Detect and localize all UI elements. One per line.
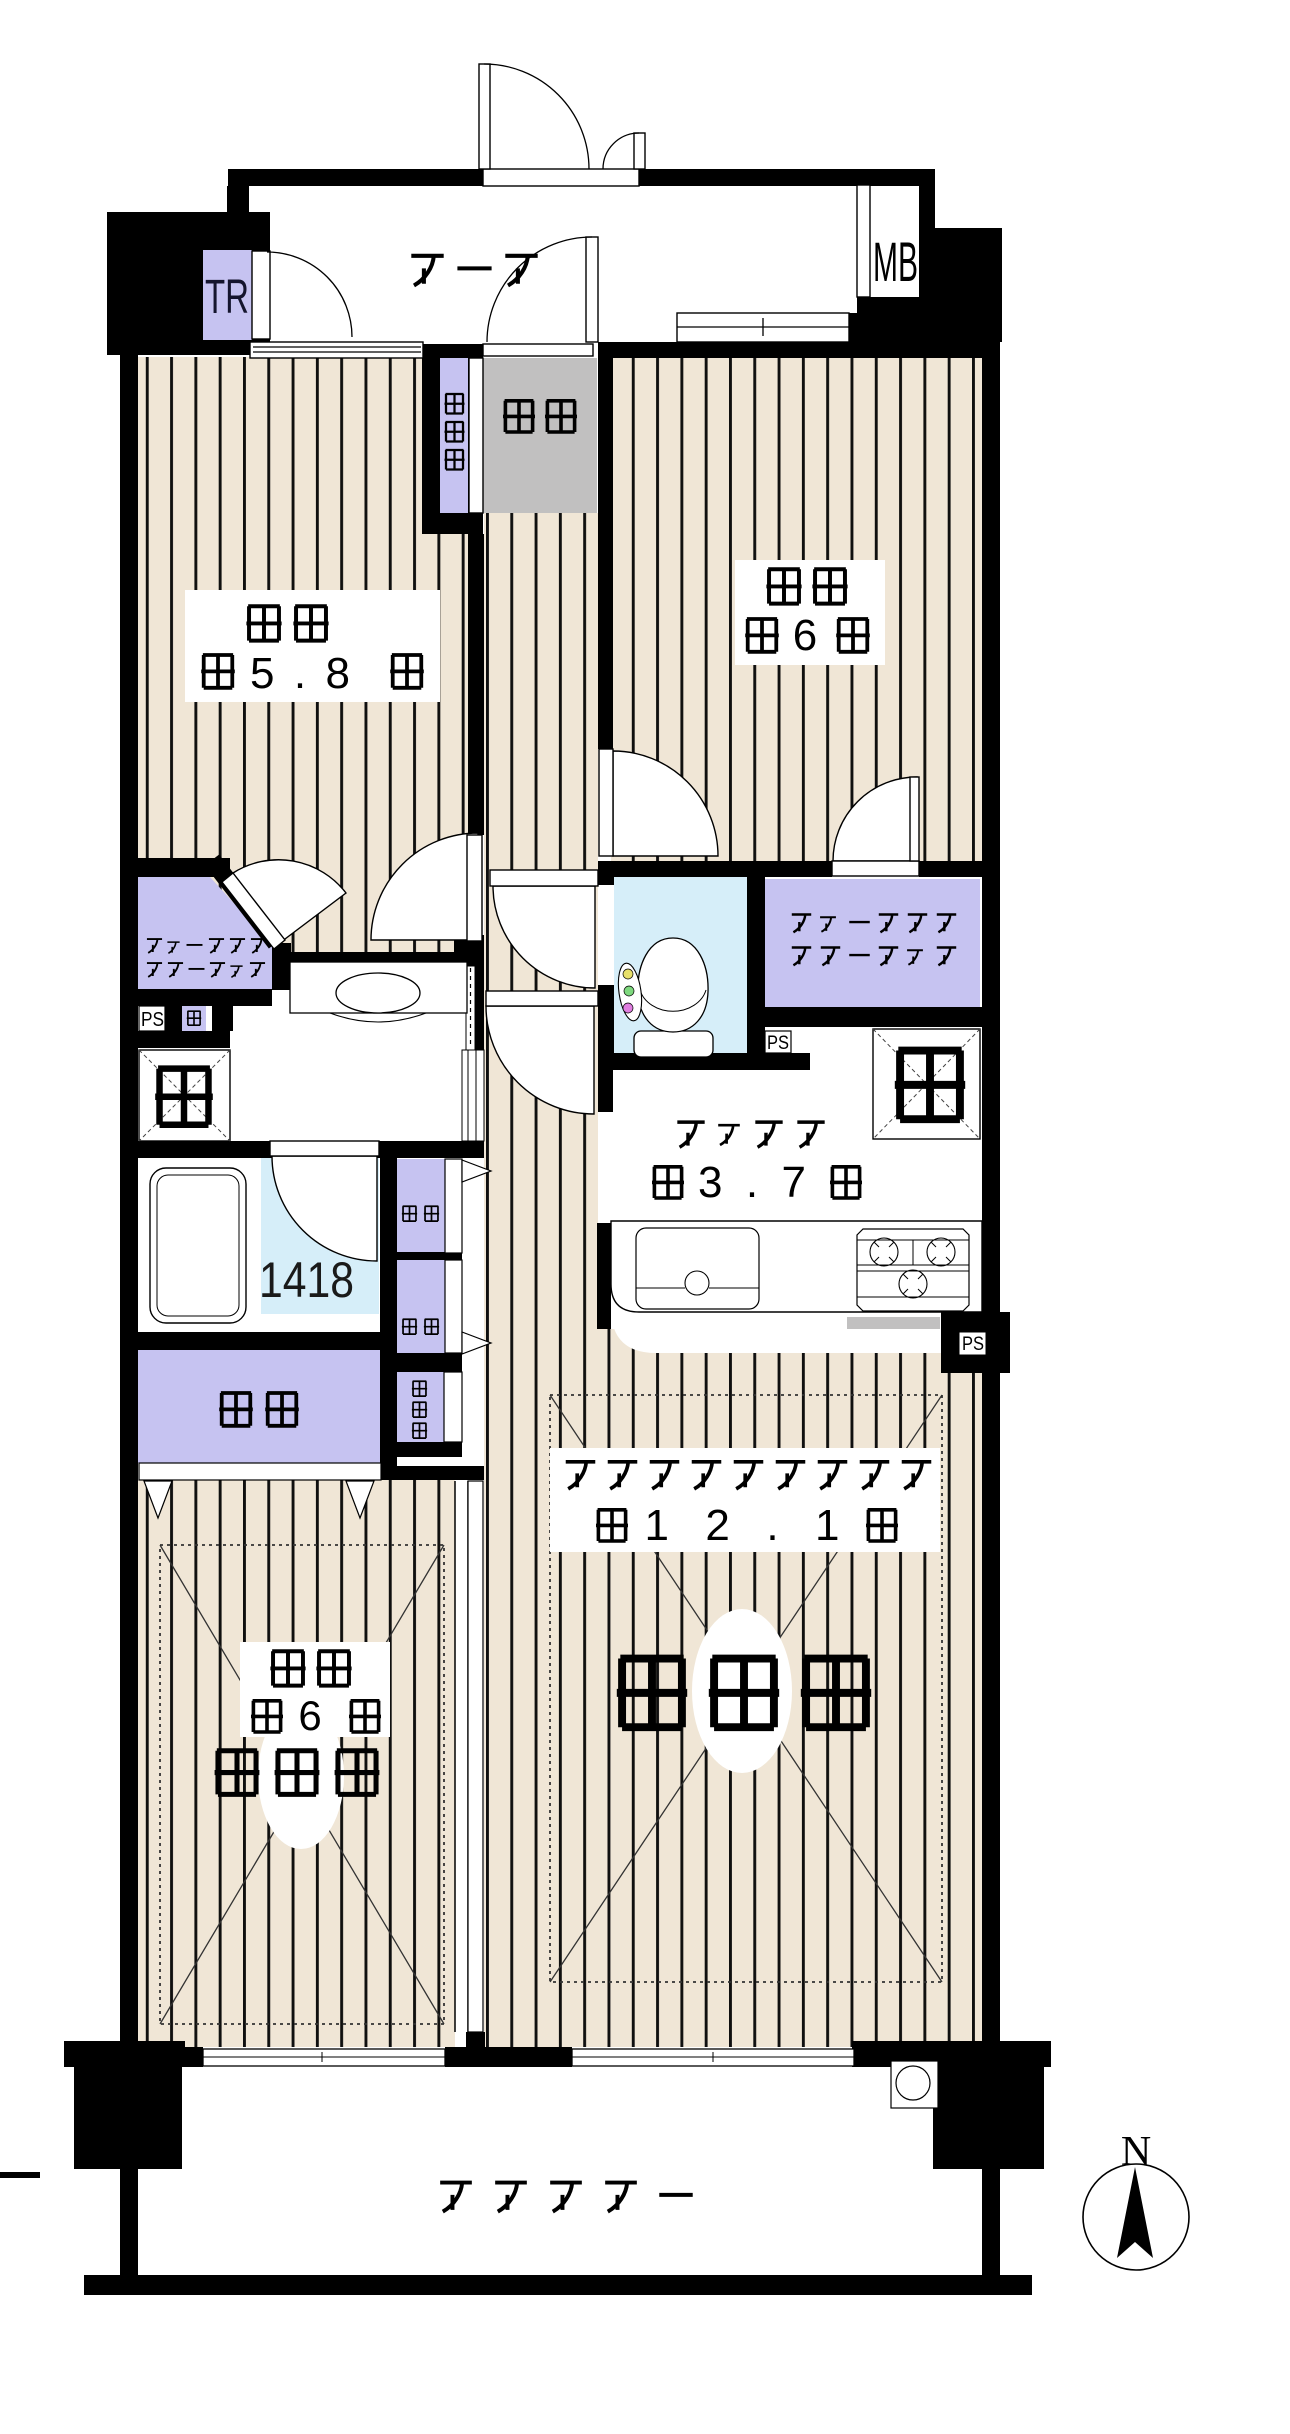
svg-text:5.8: 5.8 [250, 649, 350, 698]
svg-text:1418: 1418 [259, 1252, 354, 1308]
svg-text:TR: TR [205, 271, 249, 324]
svg-text:N: N [1121, 2129, 1151, 2175]
svg-text:6: 6 [793, 611, 817, 660]
svg-text:PS: PS [141, 1009, 164, 1031]
svg-text:6: 6 [298, 1692, 321, 1739]
svg-text:3.7: 3.7 [698, 1158, 806, 1207]
svg-text:PS: PS [767, 1033, 789, 1054]
svg-text:MB: MB [873, 230, 918, 293]
svg-text:PS: PS [962, 1334, 984, 1355]
